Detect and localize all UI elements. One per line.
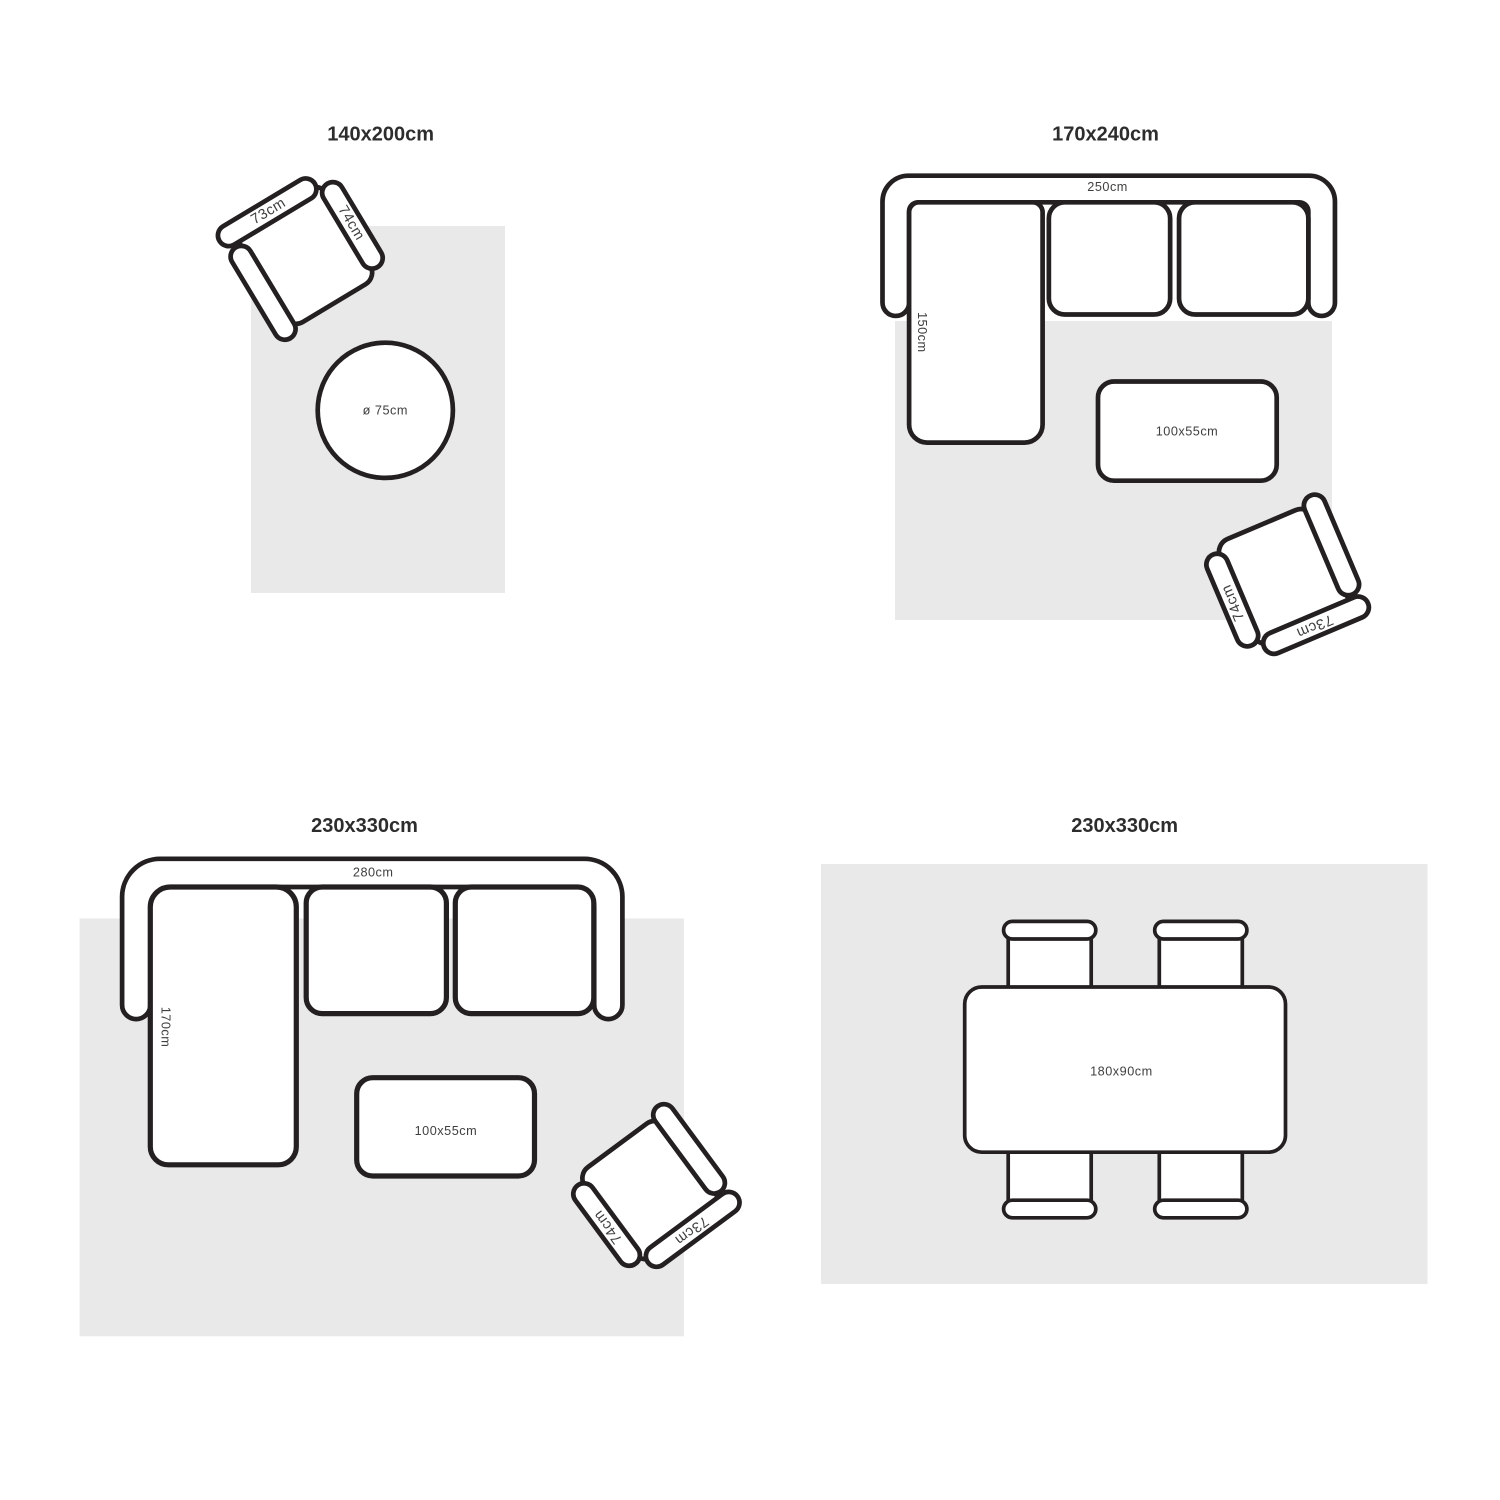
svg-text:140x200cm: 140x200cm xyxy=(327,124,434,146)
svg-text:250cm: 250cm xyxy=(1087,180,1128,194)
svg-text:170cm: 170cm xyxy=(158,1007,172,1048)
svg-text:280cm: 280cm xyxy=(353,866,394,880)
svg-text:100x55cm: 100x55cm xyxy=(1156,425,1219,439)
svg-text:150cm: 150cm xyxy=(915,312,929,353)
svg-text:100x55cm: 100x55cm xyxy=(415,1124,478,1138)
svg-text:230x330cm: 230x330cm xyxy=(311,815,418,837)
svg-text:170x240cm: 170x240cm xyxy=(1052,124,1159,146)
svg-text:ø 75cm: ø 75cm xyxy=(363,403,408,417)
svg-text:180x90cm: 180x90cm xyxy=(1090,1064,1153,1078)
svg-text:230x330cm: 230x330cm xyxy=(1071,815,1178,837)
